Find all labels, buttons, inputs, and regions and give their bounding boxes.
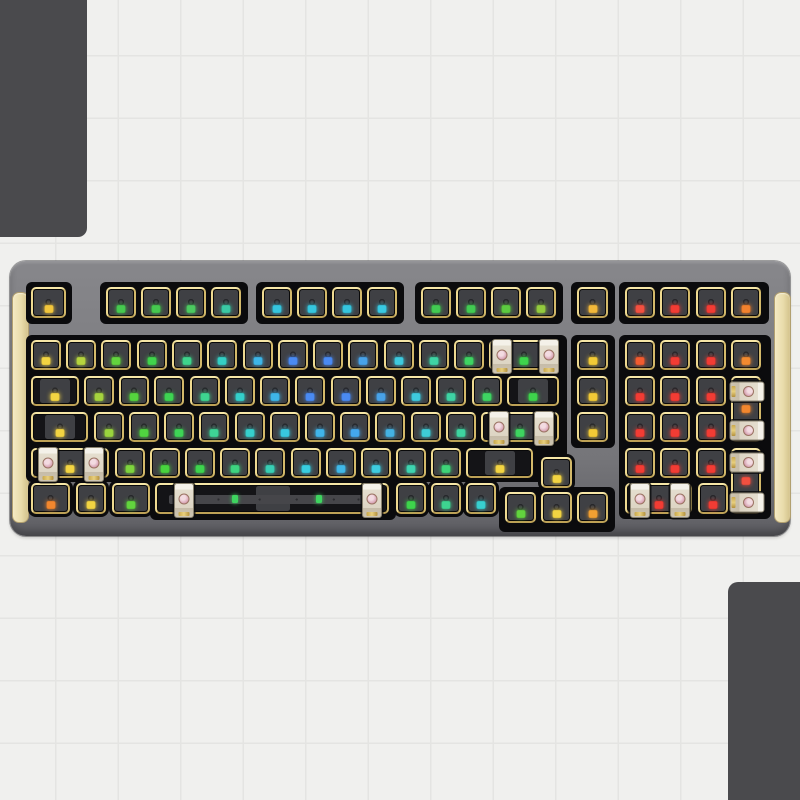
key-3: [137, 340, 167, 370]
rgb-led: [529, 393, 538, 401]
key-f: [199, 412, 229, 442]
key-k: [340, 412, 370, 442]
key-lctrl: [31, 483, 70, 514]
rgb-led: [742, 405, 751, 413]
rgb-led: [112, 357, 121, 365]
rgb-led: [165, 393, 174, 401]
rgb-led: [201, 393, 210, 401]
key-numpad-1: [625, 448, 655, 478]
key-period: [396, 448, 426, 478]
key-numpad-mul: [696, 340, 726, 370]
rgb-led: [302, 465, 311, 473]
rgb-led: [707, 465, 716, 473]
rgb-led: [636, 429, 645, 437]
key-arrow-up: [541, 457, 572, 488]
rgb-led: [671, 393, 680, 401]
key-r: [190, 376, 220, 406]
rgb-led: [588, 510, 597, 518]
rgb-led: [386, 429, 395, 437]
key-1: [66, 340, 96, 370]
rgb-led: [105, 429, 114, 437]
key-f10: [456, 287, 486, 318]
key-arrow-left: [505, 492, 536, 523]
key-nav-3: [577, 412, 608, 442]
rgb-led: [742, 357, 751, 365]
stabilizer-numpad-plus: [730, 381, 765, 401]
key-arrow-down: [541, 492, 572, 523]
key-lalt: [112, 483, 150, 514]
stabilizer-space: [174, 483, 194, 518]
rgb-led: [306, 393, 315, 401]
key-arrow-right: [577, 492, 608, 523]
stabilizer-lshift: [84, 447, 104, 482]
stabilizer-numpad-plus: [730, 420, 765, 440]
key-6: [243, 340, 273, 370]
stabilizer-lshift: [38, 447, 58, 482]
rgb-led: [407, 501, 416, 509]
stabilizer-numpad-0: [670, 483, 690, 518]
rgb-led: [196, 465, 205, 473]
rgb-led: [44, 305, 53, 313]
rgb-led: [483, 393, 492, 401]
key-lwin: [76, 483, 106, 514]
rgb-led: [636, 393, 645, 401]
key-numpad-f4: [731, 287, 761, 318]
key-b: [255, 448, 285, 478]
key-numpad-9: [696, 376, 726, 406]
rgb-led: [377, 393, 386, 401]
key-i: [331, 376, 361, 406]
rgb-led: [210, 429, 219, 437]
stabilizer-wire-channel: [169, 495, 375, 504]
rgb-led: [742, 477, 751, 485]
rgb-led: [187, 305, 196, 313]
key-numpad-f1: [625, 287, 655, 318]
stabilizer-numpad-enter: [730, 492, 765, 512]
key-9: [348, 340, 378, 370]
key-j: [305, 412, 335, 442]
key-h: [270, 412, 300, 442]
rgb-led: [407, 465, 416, 473]
key-4: [172, 340, 202, 370]
key-5: [207, 340, 237, 370]
key-slash: [431, 448, 461, 478]
rgb-led: [77, 357, 86, 365]
key-f2: [141, 287, 171, 318]
key-g: [235, 412, 265, 442]
rgb-led: [654, 501, 663, 509]
key-nav-f: [577, 287, 608, 318]
stabilizer-enter: [534, 411, 554, 446]
key-fn: [431, 483, 461, 514]
rgb-led: [552, 510, 561, 518]
key-nav-1: [577, 340, 608, 370]
rgb-led: [183, 357, 192, 365]
key-numpad-dot: [698, 483, 728, 514]
rgb-led: [342, 393, 351, 401]
key-semicolon: [411, 412, 441, 442]
key-y: [260, 376, 290, 406]
rgb-led: [161, 465, 170, 473]
key-e: [154, 376, 184, 406]
rgb-led: [671, 357, 680, 365]
rgb-led: [236, 393, 245, 401]
key-f11: [491, 287, 521, 318]
rgb-led: [42, 357, 51, 365]
rgb-led: [742, 305, 751, 313]
rgb-led: [477, 501, 486, 509]
key-x: [150, 448, 180, 478]
key-ralt: [396, 483, 426, 514]
stabilizer-numpad-enter: [730, 452, 765, 472]
key-lbracket: [436, 376, 466, 406]
key-nav-2: [577, 376, 608, 406]
rgb-led: [707, 393, 716, 401]
rgb-led: [457, 429, 466, 437]
rgb-led: [289, 357, 298, 365]
rgb-led: [95, 393, 104, 401]
rgb-led: [218, 357, 227, 365]
key-d: [164, 412, 194, 442]
key-m: [326, 448, 356, 478]
key-f3: [176, 287, 206, 318]
key-f9: [421, 287, 451, 318]
rgb-led: [273, 305, 282, 313]
rgb-led: [442, 501, 451, 509]
key-backslash: [507, 376, 559, 406]
rgb-led: [465, 357, 474, 365]
keyboard-kit: [10, 261, 790, 536]
key-numpad-7: [625, 376, 655, 406]
rgb-led: [175, 429, 184, 437]
key-a: [94, 412, 124, 442]
rgb-led: [130, 393, 139, 401]
key-w: [119, 376, 149, 406]
key-rbracket: [472, 376, 502, 406]
rgb-led: [671, 305, 680, 313]
rgb-led: [46, 501, 55, 509]
stabilizer-numpad-0: [630, 483, 650, 518]
rgb-led: [442, 465, 451, 473]
rgb-led: [127, 501, 136, 509]
key-comma: [361, 448, 391, 478]
key-numpad-3: [696, 448, 726, 478]
key-f12: [526, 287, 556, 318]
rgb-led: [246, 429, 255, 437]
rgb-led: [552, 475, 561, 483]
rgb-led: [588, 305, 597, 313]
key-f6: [297, 287, 327, 318]
key-f7: [332, 287, 362, 318]
key-v: [220, 448, 250, 478]
key-grave: [31, 340, 61, 370]
rgb-led: [516, 510, 525, 518]
key-rshift: [466, 448, 533, 478]
rgb-led: [281, 429, 290, 437]
rgb-led: [671, 429, 680, 437]
stabilizer-space: [362, 483, 382, 518]
rgb-led: [422, 429, 431, 437]
rgb-led: [588, 357, 597, 365]
key-numpad-4: [625, 412, 655, 442]
key-n: [291, 448, 321, 478]
key-numpad-minus: [731, 340, 761, 370]
rgb-led: [351, 429, 360, 437]
rgb-led: [87, 501, 96, 509]
key-numpad-lock: [625, 340, 655, 370]
key-z: [115, 448, 145, 478]
rgb-led: [316, 429, 325, 437]
rgb-led: [707, 357, 716, 365]
key-0: [384, 340, 414, 370]
key-numpad-f2: [660, 287, 690, 318]
key-minus: [419, 340, 449, 370]
rgb-led: [588, 429, 597, 437]
rgb-led: [467, 305, 476, 313]
rgb-led: [378, 305, 387, 313]
rgb-led: [140, 429, 149, 437]
key-f4: [211, 287, 241, 318]
rgb-led: [516, 429, 525, 437]
rgb-led: [316, 495, 322, 503]
rgb-led: [126, 465, 135, 473]
key-8: [313, 340, 343, 370]
rgb-led: [430, 357, 439, 365]
rgb-led: [588, 393, 597, 401]
key-7: [278, 340, 308, 370]
key-l: [375, 412, 405, 442]
rgb-led: [117, 305, 126, 313]
rgb-led: [502, 305, 511, 313]
stabilizer-backspace: [539, 339, 559, 374]
key-numpad-5: [660, 412, 690, 442]
rgb-led: [636, 357, 645, 365]
decor-block-top-left: [0, 0, 87, 237]
key-s: [129, 412, 159, 442]
decor-block-bottom-right: [728, 582, 800, 800]
rgb-led: [359, 357, 368, 365]
key-c: [185, 448, 215, 478]
rgb-led: [66, 465, 75, 473]
key-o: [366, 376, 396, 406]
key-equal: [454, 340, 484, 370]
rgb-led: [412, 393, 421, 401]
key-t: [225, 376, 255, 406]
rgb-led: [222, 305, 231, 313]
key-esc: [31, 287, 66, 318]
rgb-led: [148, 357, 157, 365]
rgb-led: [671, 465, 680, 473]
rgb-led: [432, 305, 441, 313]
rgb-led: [537, 305, 546, 313]
rgb-led: [337, 465, 346, 473]
stabilizer-enter: [489, 411, 509, 446]
rgb-led: [55, 429, 64, 437]
key-numpad-2: [660, 448, 690, 478]
key-p: [401, 376, 431, 406]
key-quote: [446, 412, 476, 442]
rgb-led: [266, 465, 275, 473]
stabilizer-backspace: [492, 339, 512, 374]
rgb-led: [343, 305, 352, 313]
key-numpad-f3: [696, 287, 726, 318]
rgb-led: [447, 393, 456, 401]
key-f8: [367, 287, 397, 318]
rgb-led: [254, 357, 263, 365]
rgb-led: [709, 501, 718, 509]
rgb-led: [495, 465, 504, 473]
key-numpad-8: [660, 376, 690, 406]
rgb-led: [372, 465, 381, 473]
key-f1: [106, 287, 136, 318]
key-q: [84, 376, 114, 406]
rgb-led: [520, 357, 529, 365]
rgb-led: [231, 465, 240, 473]
right-side-accent: [774, 292, 791, 523]
rgb-led: [395, 357, 404, 365]
key-2: [101, 340, 131, 370]
key-caps: [31, 412, 88, 442]
key-u: [295, 376, 325, 406]
rgb-led: [636, 305, 645, 313]
key-rctrl: [466, 483, 496, 514]
rgb-led: [232, 495, 238, 503]
rgb-led: [324, 357, 333, 365]
rgb-led: [51, 393, 60, 401]
rgb-led: [152, 305, 161, 313]
rgb-led: [271, 393, 280, 401]
key-numpad-6: [696, 412, 726, 442]
rgb-led: [308, 305, 317, 313]
key-f5: [262, 287, 292, 318]
rgb-led: [707, 305, 716, 313]
rgb-led: [636, 465, 645, 473]
key-tab: [31, 376, 79, 406]
product-photo-canvas: { "scene": { "background_color": "#f0f0e…: [0, 0, 800, 800]
key-numpad-div: [660, 340, 690, 370]
rgb-led: [707, 429, 716, 437]
